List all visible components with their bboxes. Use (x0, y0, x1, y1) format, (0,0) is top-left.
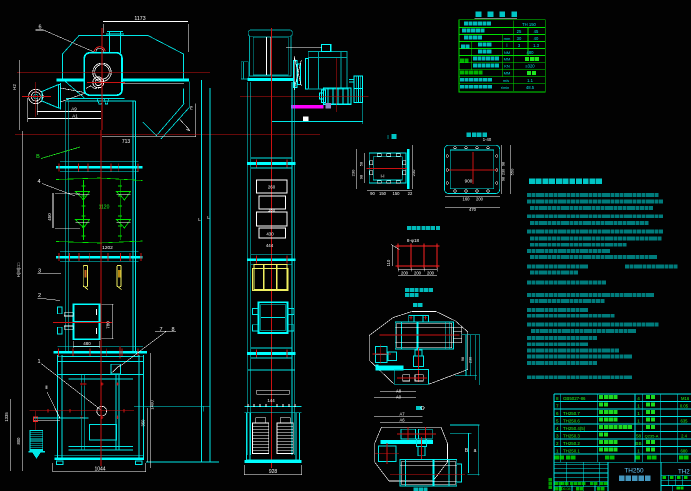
svg-text:230: 230 (469, 357, 473, 363)
svg-text:TH250.4(5): TH250.4(5) (563, 426, 586, 431)
svg-text:4: 4 (556, 426, 559, 431)
svg-text:KN: KN (504, 64, 510, 69)
svg-text:200: 200 (414, 271, 422, 276)
svg-text:r/min: r/min (501, 86, 509, 90)
svg-text:A7: A7 (399, 412, 405, 417)
svg-text:4: 4 (637, 396, 640, 401)
svg-text:0.05: 0.05 (680, 403, 689, 408)
svg-text:680: 680 (681, 448, 689, 453)
svg-text:B: B (36, 154, 40, 160)
svg-text:2.4: 2.4 (681, 433, 687, 438)
svg-text:160: 160 (463, 197, 471, 202)
svg-text:TH250.3: TH250.3 (563, 433, 580, 438)
svg-text:mm: mm (504, 36, 511, 41)
svg-text:8: 8 (171, 327, 174, 333)
svg-text:1044: 1044 (94, 466, 105, 472)
svg-text:144: 144 (267, 398, 275, 403)
svg-text:A0: A0 (396, 394, 402, 399)
svg-text:260: 260 (268, 185, 276, 190)
svg-text:H2: H2 (12, 84, 17, 90)
svg-text:1: 1 (637, 448, 640, 453)
svg-text:780: 780 (106, 321, 111, 329)
svg-text:MM: MM (504, 71, 511, 76)
svg-text:1-40: 1-40 (483, 137, 492, 142)
svg-text:1: 1 (556, 448, 559, 453)
svg-text:TH250.2: TH250.2 (563, 441, 580, 446)
svg-text:m/s: m/s (503, 78, 509, 83)
svg-text:450: 450 (47, 213, 52, 221)
svg-text:30: 30 (517, 36, 522, 41)
svg-text:2: 2 (556, 441, 559, 446)
svg-text:200: 200 (476, 197, 484, 202)
svg-text:480: 480 (83, 341, 91, 346)
svg-text:200: 200 (401, 271, 409, 276)
svg-text:635: 635 (681, 418, 689, 423)
svg-text:200: 200 (427, 271, 435, 276)
svg-text:1: 1 (637, 411, 640, 416)
svg-text:5: 5 (556, 418, 559, 423)
svg-text:a: a (474, 448, 477, 454)
svg-text:Ⅱ: Ⅱ (45, 385, 48, 391)
svg-text:3: 3 (556, 433, 559, 438)
svg-text:4: 4 (37, 179, 40, 185)
svg-text:TH250.6: TH250.6 (563, 418, 580, 423)
svg-text:430: 430 (266, 232, 274, 237)
svg-text:480: 480 (527, 50, 535, 55)
svg-text:48.5: 48.5 (526, 85, 535, 90)
svg-text:180: 180 (268, 208, 276, 213)
svg-text:MM: MM (504, 57, 511, 62)
svg-text:350: 350 (141, 419, 146, 427)
svg-text:470: 470 (469, 207, 477, 212)
svg-text:150: 150 (379, 191, 387, 196)
svg-text:230: 230 (502, 169, 506, 175)
svg-text:TH2: TH2 (678, 469, 690, 476)
svg-text:22: 22 (408, 191, 413, 196)
svg-text:A8: A8 (396, 388, 402, 393)
svg-text:79: 79 (189, 105, 194, 110)
svg-text:6: 6 (38, 25, 41, 31)
svg-text:1173: 1173 (134, 16, 145, 22)
svg-text:150: 150 (393, 191, 401, 196)
svg-text:1: 1 (37, 359, 40, 365)
svg-text:230: 230 (411, 169, 416, 176)
svg-text:713: 713 (122, 139, 131, 145)
svg-text:A9: A9 (71, 107, 77, 112)
svg-text:M16: M16 (681, 396, 690, 401)
svg-text:110: 110 (386, 259, 391, 266)
svg-text:H(M)□□: H(M)□□ (16, 262, 21, 277)
svg-text:58: 58 (636, 433, 642, 438)
svg-text:550: 550 (510, 168, 515, 175)
svg-text:A1: A1 (72, 114, 78, 119)
svg-text:7: 7 (556, 403, 559, 408)
svg-text:TH 150: TH 150 (522, 22, 536, 27)
svg-text:800: 800 (16, 437, 21, 445)
svg-text:98: 98 (502, 177, 506, 181)
svg-text:58: 58 (359, 161, 364, 166)
svg-text:98: 98 (359, 174, 364, 179)
svg-text:TH250.1: TH250.1 (563, 448, 580, 453)
svg-text:8: 8 (556, 396, 559, 401)
svg-text:40: 40 (534, 36, 539, 41)
svg-text:90: 90 (370, 191, 375, 196)
svg-text:1.1: 1.1 (527, 78, 533, 83)
svg-text:1202: 1202 (102, 245, 113, 251)
svg-text:444: 444 (266, 243, 274, 248)
svg-text:1400: 1400 (150, 400, 155, 410)
svg-text:230: 230 (351, 169, 356, 176)
svg-text:98: 98 (461, 357, 465, 361)
svg-text:BB: BB (635, 441, 641, 446)
svg-text:NM: NM (504, 50, 510, 55)
svg-text:25: 25 (517, 29, 522, 34)
svg-text:98: 98 (502, 162, 506, 166)
svg-text:6: 6 (556, 411, 559, 416)
svg-text:1.3: 1.3 (533, 43, 539, 48)
svg-text:06.08: 06.08 (562, 487, 571, 491)
svg-text:≥320: ≥320 (525, 64, 535, 69)
svg-text:l: l (507, 43, 508, 48)
svg-text:45: 45 (534, 29, 539, 34)
svg-text:900: 900 (465, 179, 473, 184)
svg-text:7: 7 (159, 327, 162, 333)
svg-text:Q235-A: Q235-A (645, 433, 659, 438)
svg-text:1: 1 (637, 403, 640, 408)
svg-text:1120: 1120 (99, 205, 110, 211)
svg-text:TH250: TH250 (624, 468, 644, 475)
svg-text:TH250.7: TH250.7 (563, 411, 580, 416)
svg-text:1: 1 (637, 418, 640, 423)
svg-text:8-φ18: 8-φ18 (407, 238, 420, 243)
svg-text:I-I: I-I (380, 174, 384, 179)
svg-text:GB5027-86: GB5027-86 (563, 396, 586, 401)
svg-text:1335: 1335 (4, 412, 9, 422)
svg-text:928: 928 (269, 469, 278, 475)
svg-text:A6: A6 (399, 418, 405, 423)
